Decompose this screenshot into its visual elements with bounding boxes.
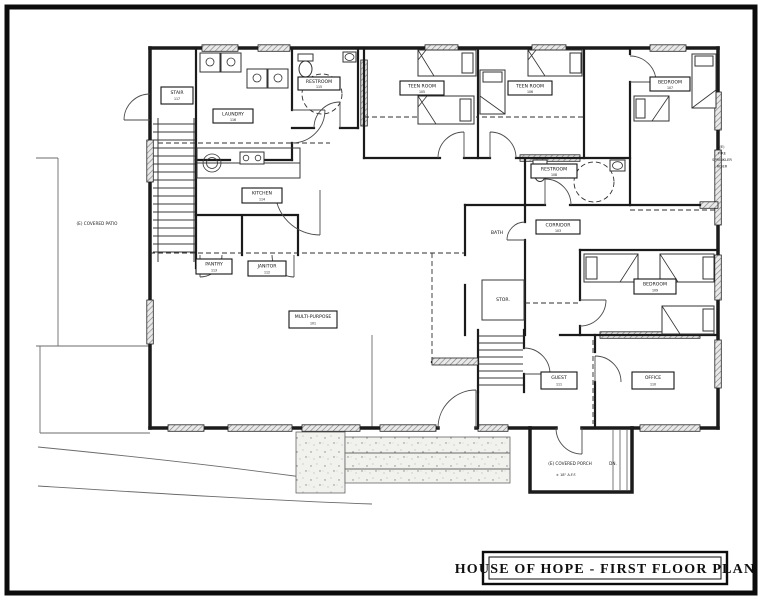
svg-text:110: 110 bbox=[650, 383, 656, 387]
accessibility-circle bbox=[574, 162, 614, 202]
svg-text:JANITOR: JANITOR bbox=[257, 264, 278, 270]
bed bbox=[418, 50, 476, 76]
room-label-teen-room-2: TEEN ROOM106 bbox=[508, 81, 552, 95]
room-label-office: OFFICE110 bbox=[632, 372, 674, 389]
svg-text:116: 116 bbox=[230, 118, 236, 122]
svg-text:112: 112 bbox=[264, 271, 270, 275]
bed bbox=[662, 306, 714, 334]
bed bbox=[418, 96, 474, 124]
svg-text:TEEN ROOM: TEEN ROOM bbox=[515, 84, 544, 90]
room-label-storage: STOR. bbox=[496, 297, 510, 303]
svg-text:105: 105 bbox=[419, 90, 425, 94]
door-bedroom-e bbox=[580, 300, 606, 326]
covered-porch-note: (E) COVERED PORCH bbox=[548, 461, 592, 466]
svg-text:CORRIDOR: CORRIDOR bbox=[546, 223, 572, 229]
sheet-border bbox=[7, 7, 755, 593]
svg-text:101: 101 bbox=[310, 322, 316, 326]
restroom-top-fixtures bbox=[298, 52, 356, 77]
room-label-multi-purpose: MULTI-PURPOSE101 bbox=[289, 311, 337, 328]
door-laundry bbox=[292, 110, 325, 143]
door-restroom-top bbox=[314, 102, 340, 128]
room-label-corridor: CORRIDOR103 bbox=[536, 220, 580, 234]
kitchen-stove bbox=[240, 152, 264, 164]
room-label-pantry: PANTRY113 bbox=[196, 259, 232, 274]
svg-text:SPRINKLER: SPRINKLER bbox=[712, 158, 732, 162]
door-porch bbox=[556, 428, 582, 454]
svg-text:114: 114 bbox=[259, 198, 265, 202]
svg-text:BEDROOM: BEDROOM bbox=[658, 80, 682, 86]
svg-text:111: 111 bbox=[556, 383, 562, 387]
floor-plan-drawing: STAIR117 LAUNDRY116 RESTROOM115 KITCHEN1… bbox=[0, 0, 762, 600]
svg-text:(E): (E) bbox=[719, 145, 725, 149]
door-office bbox=[595, 356, 621, 382]
svg-text:LAUNDRY: LAUNDRY bbox=[222, 112, 244, 118]
toilet-tank bbox=[298, 54, 313, 61]
door-multipurpose-south bbox=[438, 390, 476, 428]
room-label-bedroom-e: BEDROOM109 bbox=[634, 279, 676, 294]
drawing-title: HOUSE OF HOPE - FIRST FLOOR PLAN bbox=[455, 562, 756, 577]
bed bbox=[692, 54, 716, 108]
toilet-bowl bbox=[299, 61, 312, 77]
svg-text:113: 113 bbox=[211, 269, 217, 273]
bed bbox=[634, 96, 669, 121]
laundry-appliances bbox=[200, 53, 288, 88]
svg-text:KITCHEN: KITCHEN bbox=[252, 191, 272, 197]
room-label-janitor: JANITOR112 bbox=[248, 261, 286, 276]
door-entry-stair bbox=[124, 94, 150, 120]
door-restroom-mid bbox=[545, 179, 571, 205]
bed bbox=[480, 70, 505, 114]
svg-text:108: 108 bbox=[551, 173, 557, 177]
title-block: HOUSE OF HOPE - FIRST FLOOR PLAN bbox=[455, 552, 756, 584]
room-label-restroom-mid: RESTROOM108 bbox=[531, 164, 577, 178]
bed bbox=[528, 50, 582, 76]
kitchen-fixtures bbox=[197, 148, 300, 178]
door-teen-room-2 bbox=[490, 132, 516, 158]
svg-text:GUEST: GUEST bbox=[551, 375, 567, 381]
svg-text:OFFICE: OFFICE bbox=[645, 375, 661, 381]
porch-elevation-note: ± 18" A.F.F. bbox=[556, 473, 576, 477]
bed bbox=[584, 254, 638, 282]
svg-text:117: 117 bbox=[174, 97, 180, 101]
room-label-bedroom-ne: BEDROOM107 bbox=[650, 77, 690, 91]
svg-text:103: 103 bbox=[555, 229, 561, 233]
svg-text:115: 115 bbox=[316, 85, 322, 89]
room-label-bath: BATH bbox=[491, 230, 503, 236]
svg-text:FIRE: FIRE bbox=[718, 152, 727, 156]
svg-text:MULTI-PURPOSE: MULTI-PURPOSE bbox=[295, 314, 332, 320]
door-stair-center bbox=[524, 348, 550, 374]
svg-text:STAIR: STAIR bbox=[170, 90, 184, 96]
svg-text:TEEN ROOM: TEEN ROOM bbox=[407, 84, 436, 90]
stair-flight-left bbox=[153, 118, 195, 262]
svg-text:BEDROOM: BEDROOM bbox=[643, 282, 667, 288]
floor-plan-page: STAIR117 LAUNDRY116 RESTROOM115 KITCHEN1… bbox=[0, 0, 762, 600]
room-label-kitchen: KITCHEN114 bbox=[242, 188, 282, 203]
room-label-stair: STAIR117 bbox=[161, 87, 193, 104]
door-bath bbox=[507, 222, 525, 240]
svg-text:107: 107 bbox=[667, 86, 673, 90]
porch-steps bbox=[613, 430, 627, 490]
svg-text:RESTROOM: RESTROOM bbox=[541, 167, 567, 173]
svg-text:RISER: RISER bbox=[717, 165, 728, 169]
room-label-guest: GUEST111 bbox=[541, 372, 577, 389]
door-swings bbox=[124, 56, 656, 454]
room-label-restroom-top: RESTROOM115 bbox=[298, 77, 340, 90]
door-teen-room-1 bbox=[438, 132, 464, 158]
covered-patio-note: (E) COVERED PATIO bbox=[77, 221, 119, 226]
svg-text:109: 109 bbox=[652, 289, 658, 293]
bed bbox=[660, 254, 714, 282]
room-label-laundry: LAUNDRY116 bbox=[213, 109, 253, 123]
svg-text:PANTRY: PANTRY bbox=[205, 262, 223, 268]
svg-text:106: 106 bbox=[527, 90, 533, 94]
room-label-teen-room-1: TEEN ROOM105 bbox=[400, 81, 444, 95]
porch-dn-note: DN. bbox=[609, 461, 617, 466]
